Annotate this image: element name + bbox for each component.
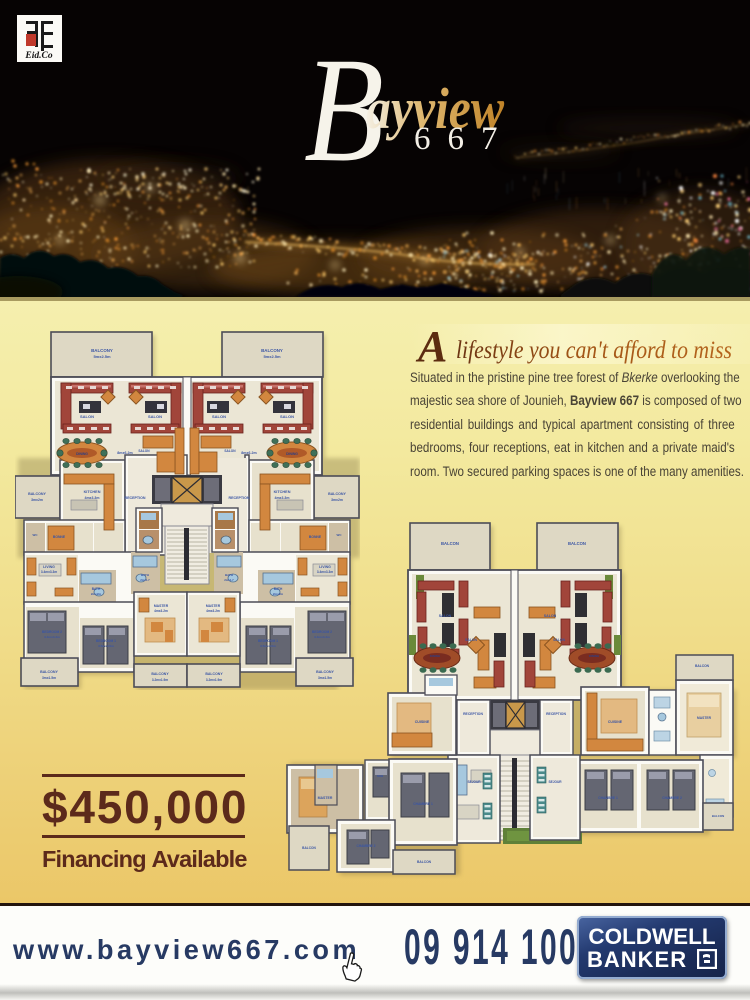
svg-text:MASTER: MASTER <box>318 796 333 800</box>
svg-text:SALON: SALON <box>439 614 452 618</box>
svg-text:SALON: SALON <box>148 414 162 419</box>
svg-text:BONNE: BONNE <box>53 535 66 539</box>
svg-text:CHAMBRE 1: CHAMBRE 1 <box>413 802 433 806</box>
svg-text:LIVING: LIVING <box>43 565 55 569</box>
svg-text:BATH: BATH <box>274 587 283 591</box>
svg-text:2mx2m: 2mx2m <box>273 592 284 596</box>
svg-text:BALCONY: BALCONY <box>28 492 46 496</box>
svg-text:3.2mx1.9m: 3.2mx1.9m <box>152 678 168 682</box>
svg-text:BATH: BATH <box>225 573 233 577</box>
svg-text:2mx1.7: 2mx1.7 <box>224 578 234 582</box>
svg-text:3.2mx1.9m: 3.2mx1.9m <box>206 678 222 682</box>
svg-text:Eid.Co: Eid.Co <box>24 51 52 61</box>
svg-text:CUISINE: CUISINE <box>608 720 623 724</box>
svg-text:SALON: SALON <box>224 449 236 453</box>
svg-text:BALCONY: BALCONY <box>261 348 283 353</box>
svg-text:3.4mx3.3m: 3.4mx3.3m <box>41 570 57 574</box>
svg-text:3.5mx3.5m: 3.5mx3.5m <box>260 644 276 648</box>
svg-text:4mx3.3m: 4mx3.3m <box>85 496 100 500</box>
svg-text:BATH: BATH <box>141 573 149 577</box>
svg-text:KITCHEN: KITCHEN <box>84 490 101 494</box>
svg-text:BEDROOM 2: BEDROOM 2 <box>42 630 62 634</box>
svg-text:RECEPTION: RECEPTION <box>229 496 250 500</box>
svg-text:CHAMBRE 1: CHAMBRE 1 <box>598 796 618 800</box>
svg-text:SALON: SALON <box>280 414 294 419</box>
svg-text:8mx6.2m: 8mx6.2m <box>117 451 132 455</box>
svg-text:BALCONY: BALCONY <box>151 672 169 676</box>
svg-text:3.5mx3.5m: 3.5mx3.5m <box>98 644 114 648</box>
svg-text:5mx2.5m: 5mx2.5m <box>263 354 281 359</box>
svg-text:SALON: SALON <box>212 414 226 419</box>
svg-text:SALON: SALON <box>80 414 94 419</box>
svg-text:MASTER: MASTER <box>206 604 221 608</box>
svg-text:667: 667 <box>414 121 515 157</box>
svg-text:RECEPTION: RECEPTION <box>546 712 566 716</box>
svg-text:DINING: DINING <box>286 452 298 456</box>
svg-text:SEJOUR: SEJOUR <box>548 780 562 784</box>
svg-text:BATH: BATH <box>92 587 101 591</box>
svg-text:2mx2m: 2mx2m <box>91 592 102 596</box>
svg-text:BEDROOM 1: BEDROOM 1 <box>258 639 278 643</box>
svg-text:NDB: NDB <box>377 774 384 778</box>
svg-text:BALCONY: BALCONY <box>205 672 223 676</box>
svg-text:BALCONY: BALCONY <box>40 670 58 674</box>
svg-text:RECEPTION: RECEPTION <box>125 496 146 500</box>
svg-text:RECEPTION: RECEPTION <box>463 712 483 716</box>
svg-text:BALCON: BALCON <box>712 814 724 818</box>
svg-text:BALCONY: BALCONY <box>91 348 113 353</box>
svg-text:SALON: SALON <box>465 638 477 642</box>
svg-text:CHAMBRE 2: CHAMBRE 2 <box>662 796 682 800</box>
svg-text:BALCON: BALCON <box>441 541 459 546</box>
svg-text:BEDROOM 1: BEDROOM 1 <box>96 639 116 643</box>
svg-text:BALCON: BALCON <box>568 541 586 546</box>
svg-text:SALON: SALON <box>553 638 565 642</box>
svg-text:BALCON: BALCON <box>695 664 710 668</box>
svg-text:DINING: DINING <box>430 654 441 658</box>
svg-text:2mx1.7: 2mx1.7 <box>140 578 150 582</box>
svg-text:DINING: DINING <box>589 654 600 658</box>
svg-text:SALON: SALON <box>138 449 150 453</box>
svg-text:lifestyle you can't afford to: lifestyle you can't afford to miss <box>456 337 732 364</box>
svg-text:4mx3.2m: 4mx3.2m <box>154 609 168 613</box>
svg-text:3mx2m: 3mx2m <box>31 498 43 502</box>
svg-text:WC: WC <box>33 533 39 537</box>
svg-text:5mx2.5m: 5mx2.5m <box>93 354 111 359</box>
svg-text:8mx6.2m: 8mx6.2m <box>241 451 256 455</box>
svg-text:MASTER: MASTER <box>154 604 169 608</box>
svg-text:A: A <box>415 322 447 368</box>
svg-text:DINING: DINING <box>76 452 88 456</box>
svg-text:4mx3.3m: 4mx3.3m <box>275 496 290 500</box>
svg-text:MASTER: MASTER <box>697 716 712 720</box>
svg-text:3mx2m: 3mx2m <box>331 498 343 502</box>
svg-text:3.4mx3.4m: 3.4mx3.4m <box>44 635 60 639</box>
svg-text:SEJOUR: SEJOUR <box>467 780 481 784</box>
svg-text:KITCHEN: KITCHEN <box>274 490 291 494</box>
svg-text:SALON: SALON <box>544 614 557 618</box>
svg-text:BALCON: BALCON <box>302 846 316 850</box>
svg-text:4mx3.2m: 4mx3.2m <box>206 609 220 613</box>
svg-text:CUISINE: CUISINE <box>415 720 430 724</box>
svg-text:BALCON: BALCON <box>417 860 432 864</box>
svg-text:3mx1.5m: 3mx1.5m <box>42 676 56 680</box>
svg-text:BALCONY: BALCONY <box>328 492 346 496</box>
svg-text:CHAMBRE 2: CHAMBRE 2 <box>357 844 376 848</box>
